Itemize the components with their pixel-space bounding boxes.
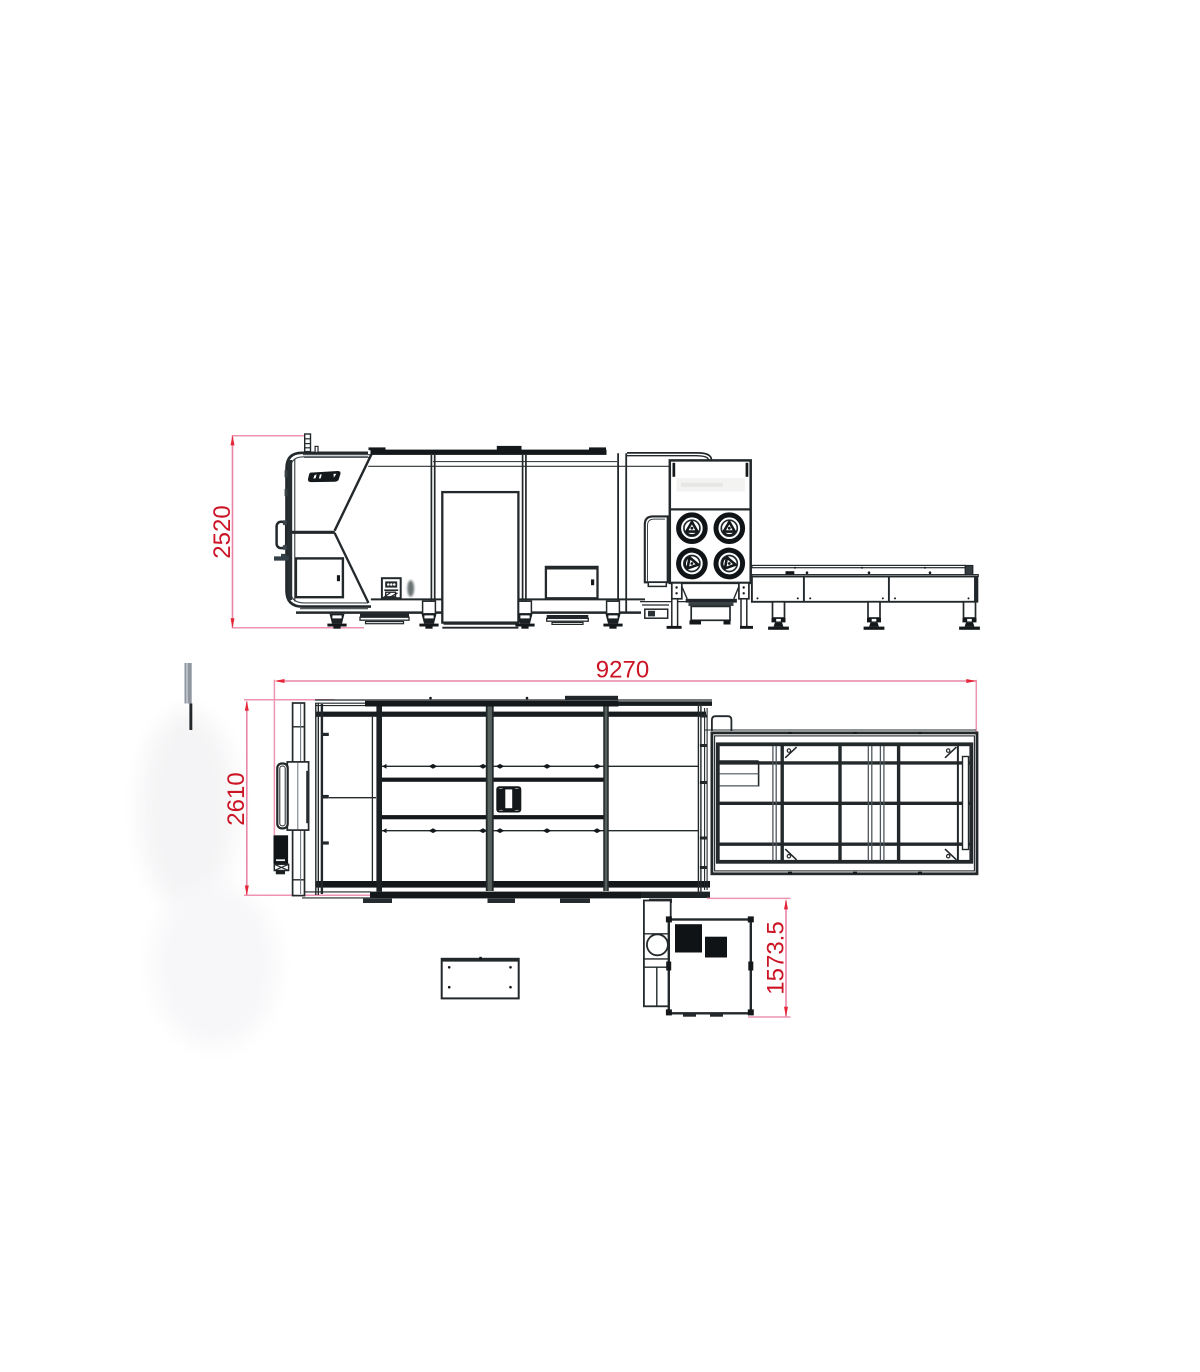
svg-text:2610: 2610: [223, 772, 250, 825]
svg-text:9270: 9270: [596, 657, 649, 684]
svg-text:1573.5: 1573.5: [763, 921, 790, 994]
svg-text:2520: 2520: [209, 505, 236, 558]
